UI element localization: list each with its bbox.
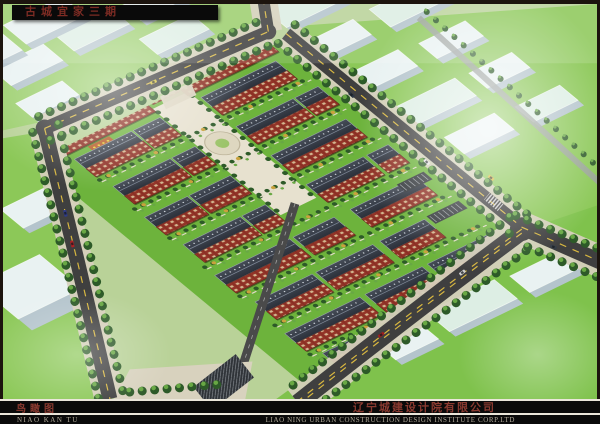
footer: 鸟瞰图 辽宁城建设计院有限公司 NIAO KAN TU LIAO NING UR… [0, 399, 600, 424]
company-name-en: LIAO NING URBAN CONSTRUCTION DESIGN INST… [266, 416, 515, 424]
aerial-rendering-area [3, 4, 597, 399]
footer-row-english: NIAO KAN TU LIAO NING URBAN CONSTRUCTION… [0, 415, 600, 424]
title-banner: 古城宜家三期 [12, 5, 218, 20]
presentation-board: 古城宜家三期 鸟瞰图 辽宁城建设计院有限公司 NIAO KAN TU LIAO … [0, 0, 600, 424]
company-name-cn: 辽宁城建设计院有限公司 [353, 399, 496, 415]
aerial-rendering-svg [3, 4, 597, 399]
view-label-en: NIAO KAN TU [17, 416, 79, 424]
project-title: 古城宜家三期 [25, 6, 121, 18]
view-label-cn: 鸟瞰图 [16, 400, 58, 415]
footer-row-chinese: 鸟瞰图 辽宁城建设计院有限公司 [0, 401, 600, 413]
